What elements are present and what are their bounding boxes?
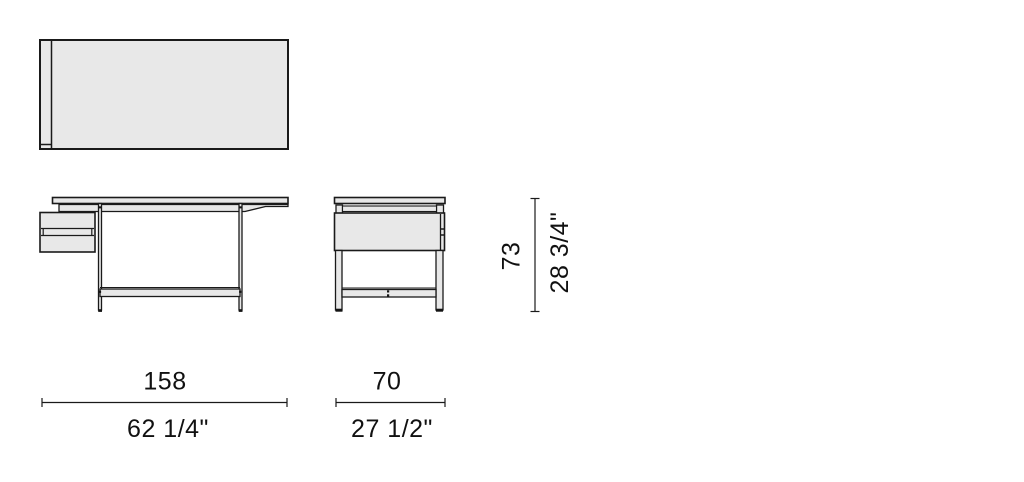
front-stretcher-bar (100, 289, 240, 297)
front-right-leg-screw-dot (240, 206, 242, 208)
front-view (40, 198, 288, 312)
tabletop-plan-outline (40, 40, 288, 149)
front-desktop-slab (53, 198, 289, 204)
depth-dimension: 70 27 1/2" (336, 368, 445, 444)
width-imperial-label: 62 1/4" (127, 415, 209, 443)
side-drawer-box (335, 213, 445, 251)
top-view (40, 40, 288, 149)
front-stretcher (99, 288, 241, 297)
desk-technical-drawing: 158 62 1/4" 70 27 1/2" 73 28 3/4" (0, 0, 1024, 482)
side-right-foot (436, 309, 443, 312)
front-left-foot (98, 309, 102, 312)
side-right-leg-outline (436, 251, 443, 311)
side-stretcher-screw-dot-upper (387, 290, 389, 292)
depth-metric-label: 70 (373, 368, 402, 396)
drawer-unit (40, 213, 95, 253)
drawer-unit-outline (40, 213, 95, 253)
width-metric-label: 158 (143, 368, 186, 396)
side-rail (343, 206, 437, 212)
side-left-leg-outline (336, 251, 343, 311)
front-left-leg-screw-dot (99, 206, 101, 208)
side-view (335, 198, 446, 312)
front-stretcher-left-screw-dot (99, 291, 101, 293)
side-left-foot (336, 309, 343, 312)
dimension-annotations: 158 62 1/4" 70 27 1/2" 73 28 3/4" (42, 199, 574, 444)
height-metric-label: 73 (498, 242, 526, 271)
side-desktop-slab (335, 198, 446, 204)
front-apron (59, 205, 288, 212)
depth-imperial-label: 27 1/2" (351, 415, 433, 443)
width-dimension: 158 62 1/4" (42, 368, 287, 444)
height-dimension: 73 28 3/4" (498, 199, 575, 312)
front-stretcher-right-screw-dot (239, 291, 241, 293)
side-stretcher-screw-dot-lower (387, 294, 389, 296)
height-imperial-label: 28 3/4" (546, 212, 574, 294)
technical-drawing-page: 158 62 1/4" 70 27 1/2" 73 28 3/4" (0, 0, 1024, 482)
front-right-foot (239, 309, 243, 312)
